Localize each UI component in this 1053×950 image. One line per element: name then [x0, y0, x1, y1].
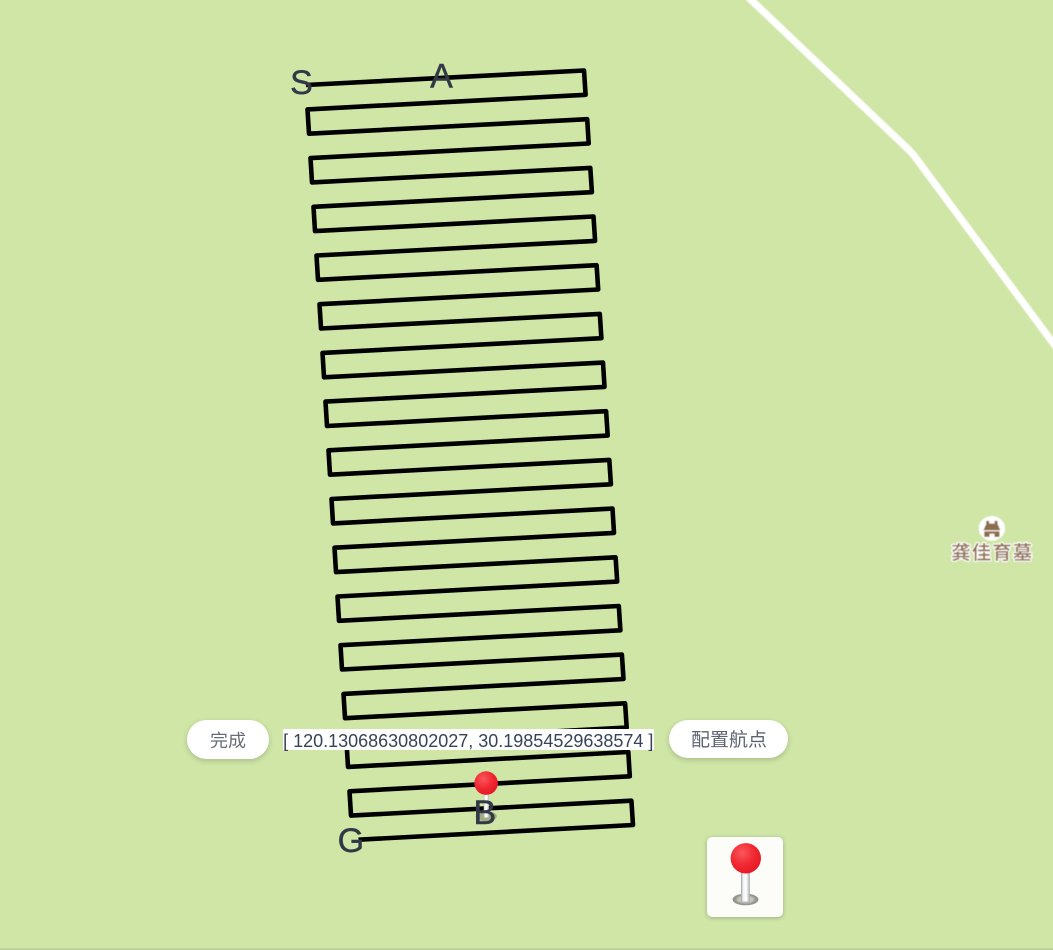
svg-text:S: S	[290, 64, 313, 102]
svg-text:A: A	[430, 58, 453, 96]
svg-text:G: G	[338, 822, 364, 860]
svg-text:B: B	[473, 794, 496, 832]
